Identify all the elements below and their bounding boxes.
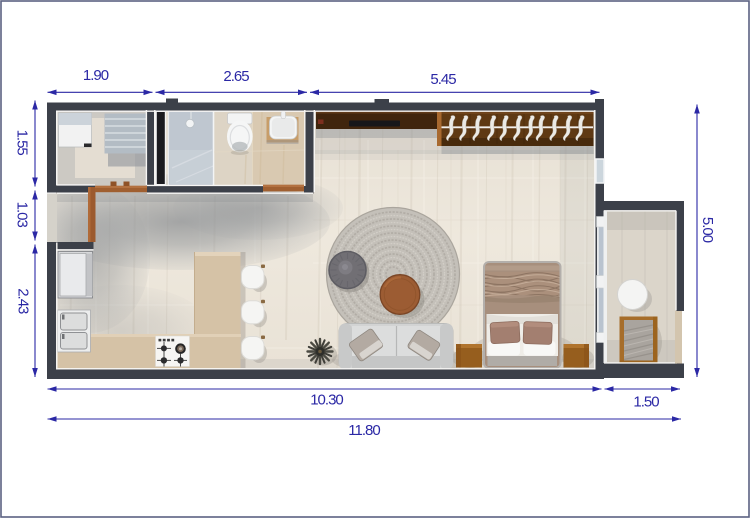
svg-text:1.03: 1.03 bbox=[13, 202, 30, 228]
svg-text:11.80: 11.80 bbox=[348, 422, 380, 439]
svg-text:1.50: 1.50 bbox=[633, 394, 659, 411]
svg-text:5.00: 5.00 bbox=[699, 217, 716, 243]
svg-text:10.30: 10.30 bbox=[310, 392, 343, 409]
svg-text:2.65: 2.65 bbox=[223, 68, 249, 85]
svg-text:2.43: 2.43 bbox=[14, 288, 31, 314]
svg-text:1.55: 1.55 bbox=[14, 130, 31, 156]
svg-text:1.90: 1.90 bbox=[83, 67, 109, 84]
svg-text:5.45: 5.45 bbox=[430, 71, 456, 88]
